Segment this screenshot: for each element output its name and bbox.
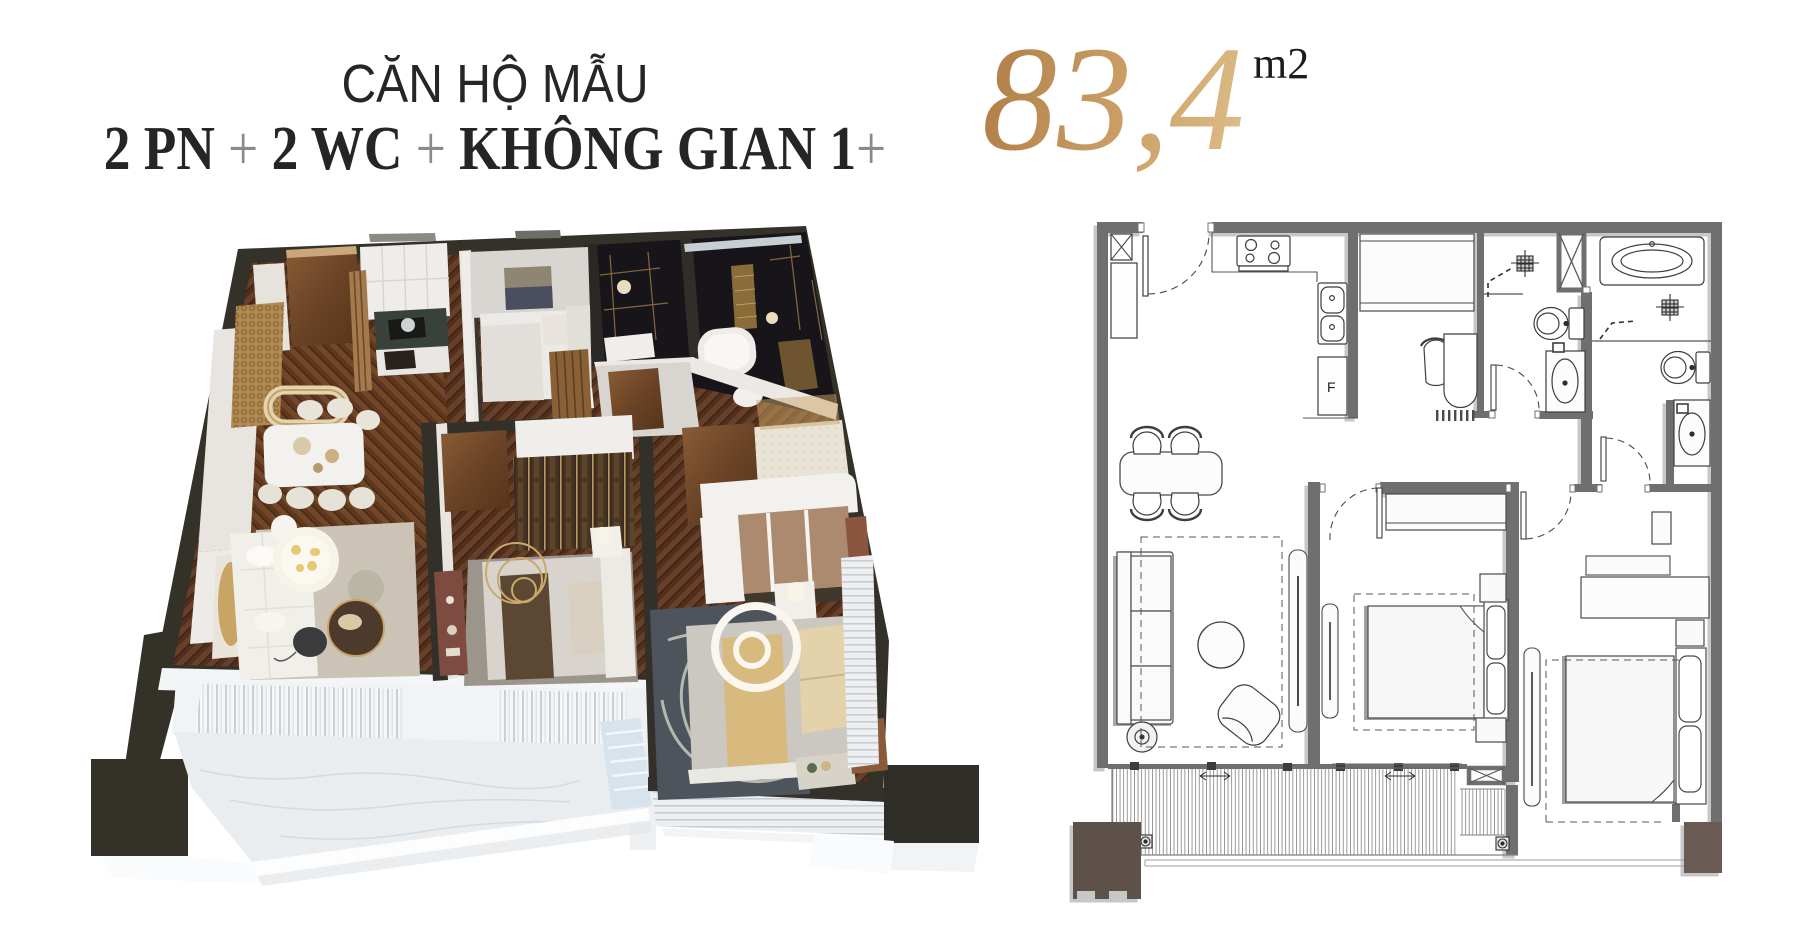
svg-text:F: F <box>1327 379 1336 395</box>
